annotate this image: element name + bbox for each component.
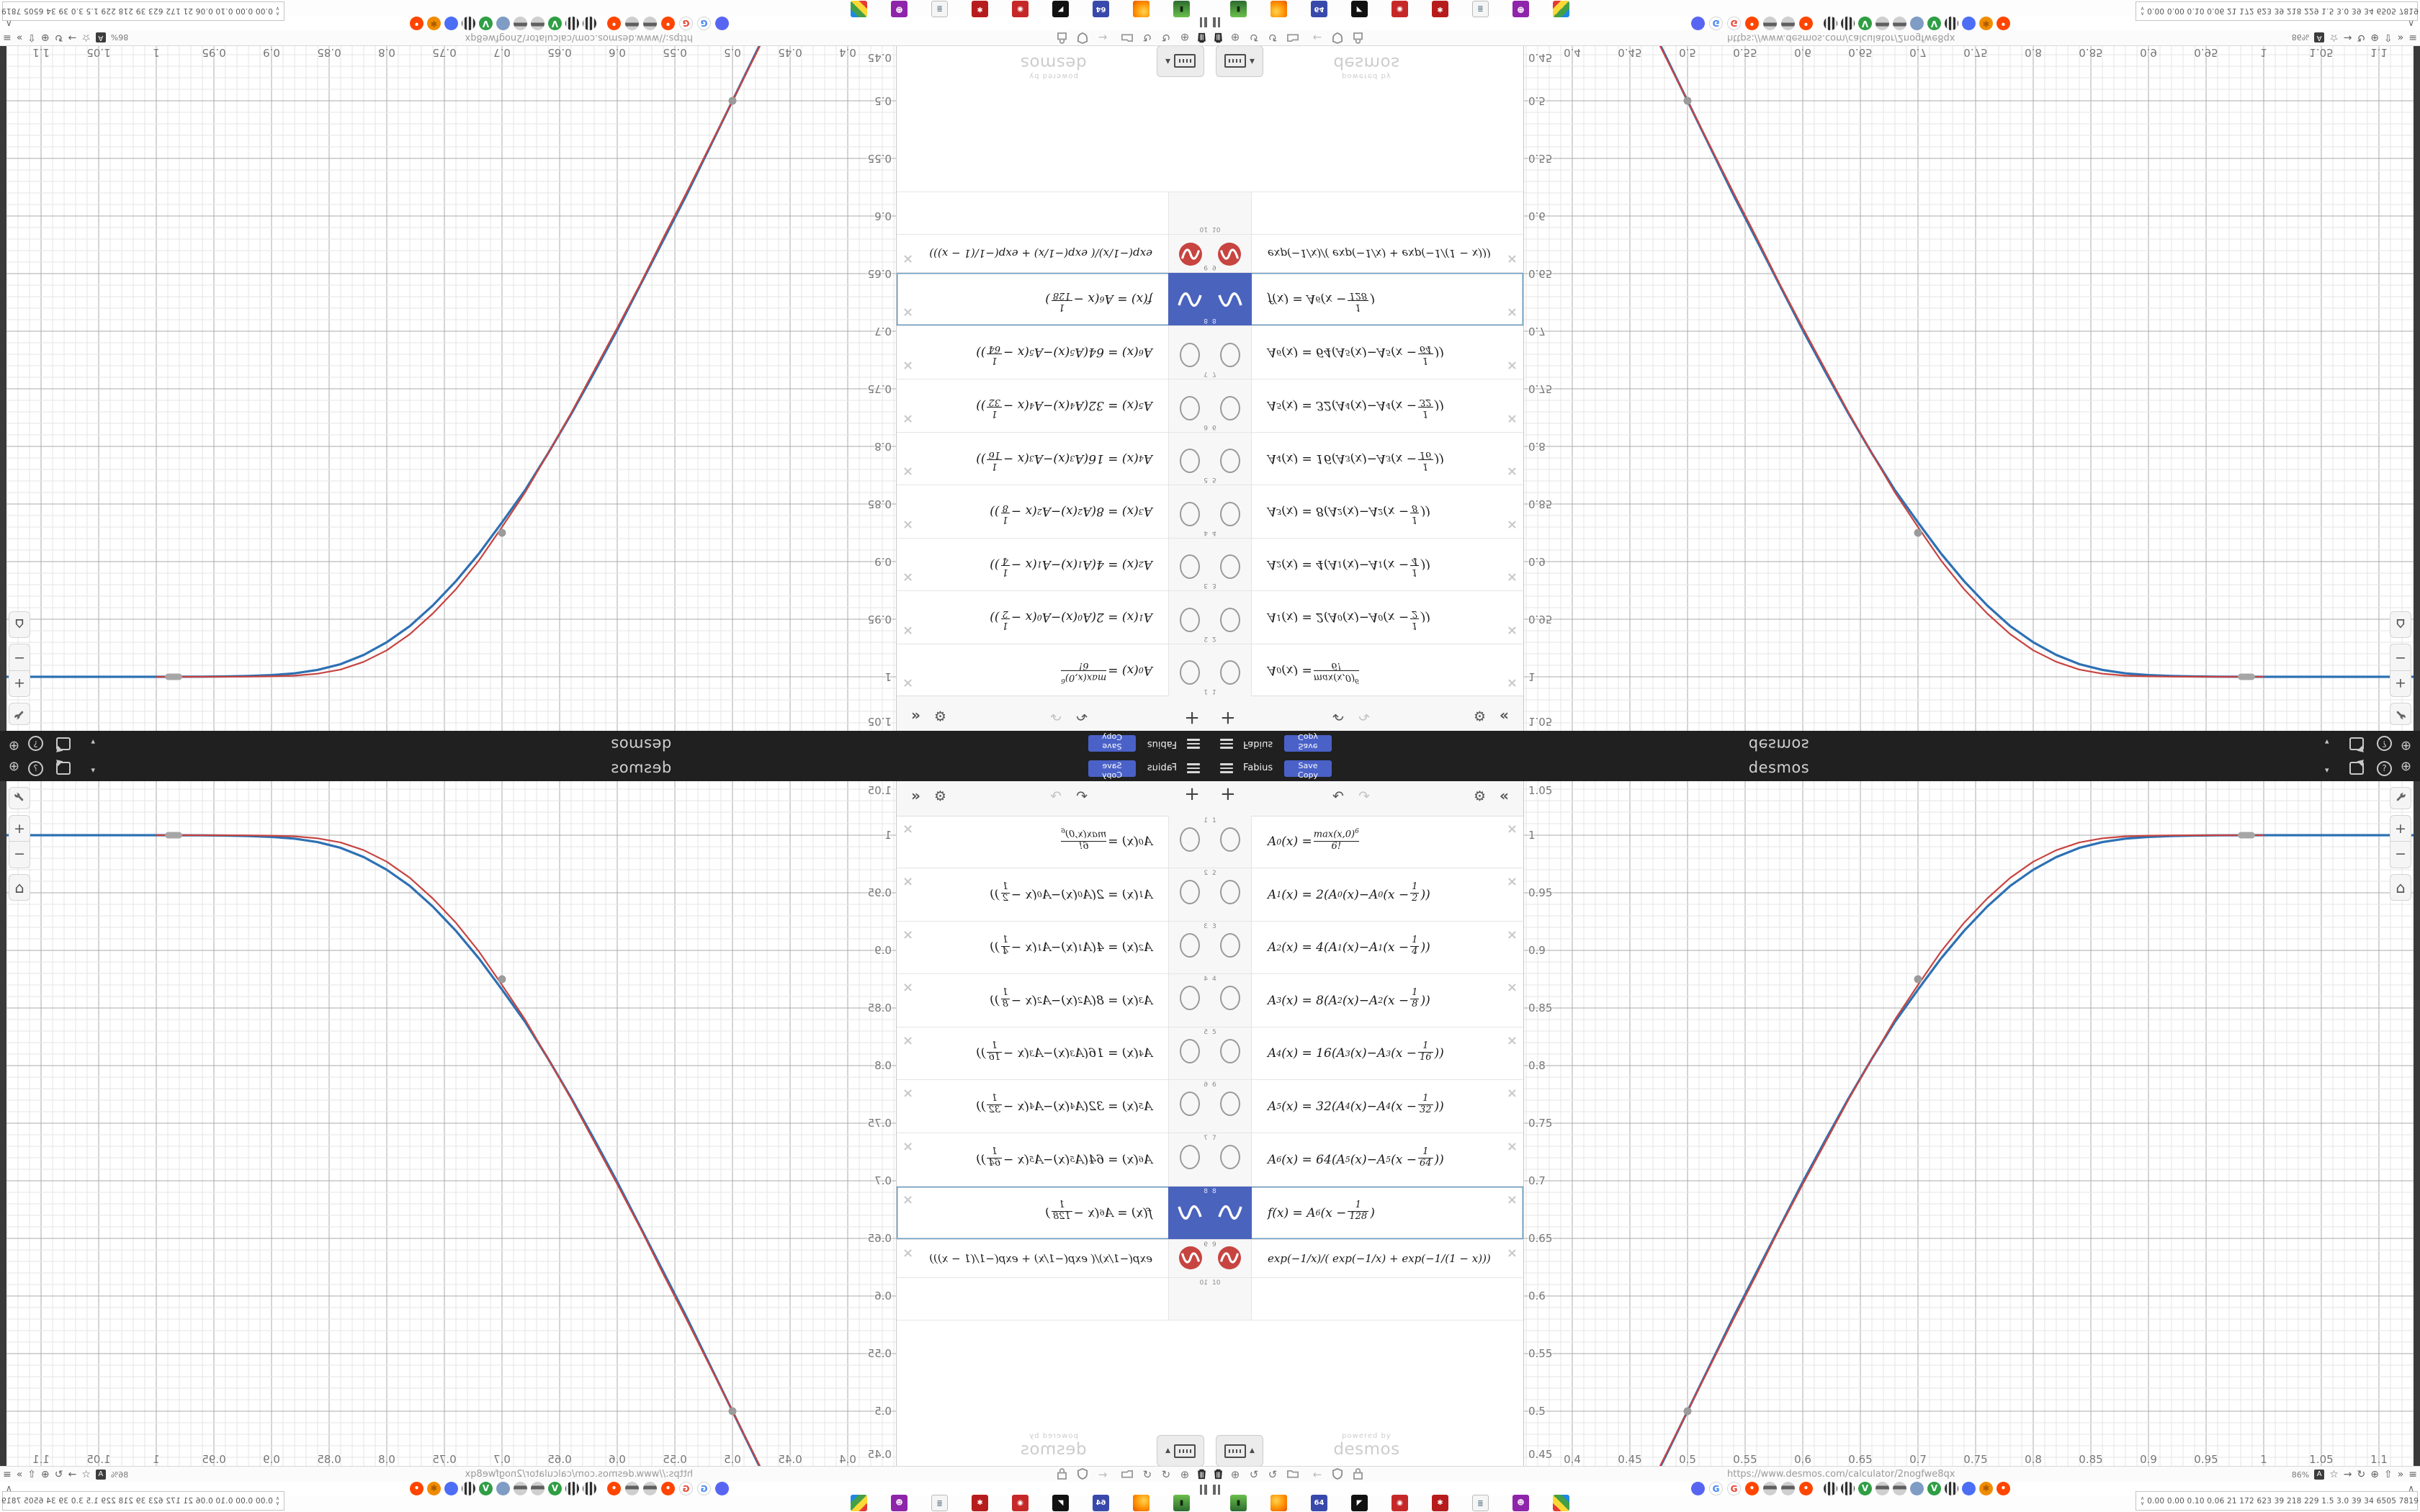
expression-row[interactable]: 8f(x) = A6(x − 1128)× — [1210, 272, 1523, 325]
lock-icon[interactable] — [1056, 1468, 1069, 1481]
zoom-level[interactable]: 86% — [2292, 1470, 2309, 1480]
red-curve-icon[interactable] — [1218, 1246, 1241, 1269]
favicon-avatar-blue[interactable] — [496, 17, 510, 30]
undo-button[interactable]: ↶ — [1076, 788, 1088, 804]
url-text[interactable]: https://www.desmos.com/calculator/2nogfw… — [1727, 1469, 1955, 1480]
hidden-curve-icon[interactable] — [1220, 343, 1240, 367]
scrollbar[interactable] — [2414, 46, 2420, 731]
expression-row[interactable]: 4A3(x) = 8(A2(x)−A2(x − 18))× — [897, 485, 1210, 538]
expression-row[interactable]: 8f(x) = A6(x − 1128)× — [897, 1187, 1210, 1240]
hidden-curve-icon[interactable] — [1180, 554, 1200, 579]
expression-row[interactable]: 2A1(x) = 2(A0(x)−A0(x − 12))× — [1210, 590, 1523, 644]
expression-row[interactable]: 9exp(−1/x)/( exp(−1/x) + exp(−1/(1 − x))… — [897, 1240, 1210, 1278]
default-zoom-home-button[interactable]: ⌂ — [9, 611, 30, 638]
app-icon-terminal[interactable]: ▮ — [1173, 1495, 1190, 1511]
expression-row[interactable]: 8f(x) = A6(x − 1128)× — [1210, 1187, 1523, 1240]
chevrons-icon[interactable]: » — [17, 1469, 23, 1480]
graph-area[interactable]: 0.40.450.50.550.60.650.70.750.80.850.90.… — [1524, 781, 2420, 1466]
graph-title[interactable]: Fabius — [1243, 762, 1273, 773]
delete-expression-button[interactable]: × — [902, 411, 913, 426]
hidden-curve-icon[interactable] — [1180, 608, 1200, 632]
favicon-jail[interactable] — [1841, 1482, 1855, 1495]
expression-row[interactable]: 3A2(x) = 4(A1(x)−A1(x − 14))× — [897, 922, 1210, 974]
globe-icon[interactable]: ⊕ — [9, 760, 19, 773]
expression-icon-cell[interactable]: 10 — [1168, 192, 1210, 234]
delete-expression-button[interactable]: × — [1507, 251, 1518, 266]
favicon-jail[interactable] — [565, 1482, 579, 1495]
delete-expression-button[interactable]: × — [1507, 305, 1518, 320]
trash-icon[interactable] — [1196, 31, 1209, 44]
share-icon[interactable] — [2349, 762, 2364, 775]
favicon-jail[interactable] — [583, 1482, 596, 1495]
chevrons-icon[interactable]: » — [2398, 1469, 2404, 1480]
favicon-raccoon[interactable] — [531, 1482, 544, 1495]
delete-expression-button[interactable]: × — [1507, 874, 1518, 889]
expression-math[interactable]: A0(x) = max(x,0)66! — [1059, 816, 1168, 868]
app-icon-bw-app[interactable]: ◤ — [1052, 1, 1069, 17]
expression-row[interactable]: 9exp(−1/x)/( exp(−1/x) + exp(−1/(1 − x))… — [897, 234, 1210, 272]
expression-icon-cell[interactable]: 1 — [1168, 816, 1210, 868]
globe-icon[interactable]: ⊕ — [41, 32, 50, 43]
share-icon[interactable]: ⇧ — [27, 1469, 36, 1480]
app-icon-red-badge[interactable]: ◉ — [1012, 1495, 1028, 1511]
hidden-curve-icon[interactable] — [1220, 502, 1240, 526]
expression-row[interactable]: 10 — [897, 1278, 1210, 1320]
help-icon[interactable]: ? — [28, 761, 43, 776]
favicon-raccoon[interactable] — [643, 1482, 657, 1495]
settings-gear-icon[interactable]: ⚙ — [934, 708, 946, 724]
expression-row[interactable]: 9exp(−1/x)/( exp(−1/x) + exp(−1/(1 − x))… — [1210, 1240, 1523, 1278]
favicon-reddit[interactable]: • — [661, 1482, 675, 1495]
delete-expression-button[interactable]: × — [902, 623, 913, 638]
refresh-icon[interactable]: ↻ — [55, 1469, 63, 1480]
favicon-reddit[interactable]: • — [1996, 1482, 2010, 1495]
graph-title[interactable]: Fabius — [1243, 739, 1273, 750]
back-arrow-icon[interactable]: ← — [1311, 31, 1324, 44]
favicon-google[interactable]: G — [697, 17, 711, 30]
expression-icon-cell[interactable]: 7 — [1168, 326, 1210, 379]
favicon-green-v[interactable]: V — [1858, 1482, 1872, 1495]
expression-row[interactable]: 2A1(x) = 2(A0(x)−A0(x − 12))× — [897, 868, 1210, 922]
delete-expression-button[interactable]: × — [902, 358, 913, 373]
pause-icon[interactable] — [1198, 14, 1207, 28]
default-zoom-home-button[interactable]: ⌂ — [9, 874, 30, 901]
expression-icon-cell[interactable]: 9 — [1210, 1240, 1252, 1277]
menu-icon[interactable] — [1220, 738, 1233, 749]
forward-arrow-icon[interactable]: → — [2344, 32, 2352, 43]
app-icon-firefox[interactable] — [1133, 1, 1149, 17]
globe-icon[interactable]: ⊕ — [2401, 739, 2411, 752]
trash-icon[interactable] — [1211, 31, 1224, 44]
zoom-in-button[interactable]: + — [9, 670, 30, 697]
bookmark-star-icon[interactable]: ☆ — [2329, 1469, 2339, 1480]
zoom-level[interactable]: 86% — [2292, 33, 2309, 42]
delete-expression-button[interactable]: × — [902, 1086, 913, 1101]
globe-icon[interactable]: ⊕ — [2370, 1469, 2379, 1480]
favicon-google[interactable]: G — [679, 17, 693, 30]
hidden-curve-icon[interactable] — [1180, 502, 1200, 526]
favicon-avatar-blue[interactable] — [496, 1482, 510, 1495]
delete-expression-button[interactable]: × — [1507, 570, 1518, 585]
globe-icon[interactable]: ⊕ — [41, 1469, 50, 1480]
expression-row[interactable]: 7A6(x) = 64(A5(x)−A5(x − 164))× — [897, 1133, 1210, 1187]
save-copy-button[interactable]: Save Copy — [1284, 735, 1332, 752]
hidden-curve-icon[interactable] — [1220, 880, 1240, 904]
app-icon-floppy-64[interactable]: 64 — [1093, 1495, 1109, 1511]
globe-icon[interactable]: ⊕ — [9, 739, 19, 752]
bookmark-star-icon[interactable]: ☆ — [81, 32, 91, 43]
translate-icon[interactable]: A — [2314, 32, 2324, 42]
favicon-jail[interactable] — [1945, 1482, 1958, 1495]
expression-math[interactable]: A2(x) = 4(A1(x)−A1(x − 14)) — [1252, 922, 1430, 973]
lock-icon[interactable] — [1056, 31, 1069, 44]
favicon-raccoon[interactable] — [1875, 1482, 1889, 1495]
favicon-green-v[interactable]: V — [479, 1482, 493, 1495]
zoom-out-button[interactable]: − — [9, 842, 30, 868]
graph-area[interactable]: 0.40.450.50.550.60.650.70.750.80.850.90.… — [0, 46, 896, 731]
refresh-icon[interactable]: ↻ — [2357, 1469, 2365, 1480]
curve-blue-fabius[interactable] — [0, 46, 848, 677]
hidden-curve-icon[interactable] — [1220, 554, 1240, 579]
expression-row[interactable]: 1A0(x) = max(x,0)66!× — [897, 816, 1210, 868]
expression-math[interactable]: f(x) = A6(x − 1128) — [1045, 273, 1168, 325]
favicon-chat-blue[interactable] — [1962, 17, 1976, 30]
hidden-curve-icon[interactable] — [1220, 1039, 1240, 1063]
delete-expression-button[interactable]: × — [1507, 1033, 1518, 1048]
expression-icon-cell[interactable]: 2 — [1210, 868, 1252, 921]
expression-row[interactable]: 2A1(x) = 2(A0(x)−A0(x − 12))× — [897, 590, 1210, 644]
shield-icon[interactable] — [1076, 1468, 1089, 1481]
delete-expression-button[interactable]: × — [1507, 675, 1518, 690]
intersection-point[interactable] — [498, 976, 506, 984]
expression-icon-cell[interactable]: 6 — [1168, 1080, 1210, 1133]
expression-math[interactable]: A6(x) = 64(A5(x)−A5(x − 164)) — [1252, 1133, 1444, 1186]
app-icon-purple-face[interactable]: ☻ — [1512, 1495, 1529, 1511]
expression-icon-cell[interactable]: 3 — [1168, 539, 1210, 590]
app-icon-palette[interactable] — [851, 1495, 867, 1511]
zoom-out-button[interactable]: − — [9, 644, 30, 670]
expression-icon-cell[interactable]: 2 — [1168, 591, 1210, 644]
intersection-point[interactable] — [729, 97, 737, 105]
app-icon-firefox[interactable] — [1270, 1495, 1287, 1511]
expression-math[interactable]: A6(x) = 64(A5(x)−A5(x − 164)) — [1252, 326, 1444, 379]
expression-icon-cell[interactable]: 5 — [1210, 1027, 1252, 1079]
favicon-raccoon[interactable] — [1763, 17, 1777, 30]
reload-icon[interactable]: ↺ — [1266, 31, 1279, 44]
graph-area[interactable]: 0.40.450.50.550.60.650.70.750.80.850.90.… — [1524, 46, 2420, 731]
expression-row[interactable]: 2A1(x) = 2(A0(x)−A0(x − 12))× — [1210, 868, 1523, 922]
app-icon-purple-face[interactable]: ☻ — [1512, 1, 1529, 17]
help-icon[interactable]: ? — [2377, 761, 2392, 776]
expression-math[interactable]: A4(x) = 16(A3(x)−A3(x − 116)) — [1252, 433, 1444, 485]
trash-icon[interactable] — [1211, 1468, 1224, 1481]
expression-icon-cell[interactable]: 6 — [1168, 379, 1210, 432]
merged-points-capsule[interactable] — [165, 832, 182, 839]
expression-icon-cell[interactable]: 10 — [1168, 1278, 1210, 1320]
expression-math[interactable]: A3(x) = 8(A2(x)−A2(x − 18)) — [990, 974, 1168, 1027]
add-expression-button[interactable]: + — [1184, 707, 1200, 729]
expression-icon-cell[interactable]: 8 — [1210, 1187, 1252, 1239]
undo-button[interactable]: ↶ — [1332, 788, 1344, 804]
app-icon-floppy-64[interactable]: 64 — [1311, 1, 1327, 17]
expression-math[interactable]: f(x) = A6(x − 1128) — [1252, 273, 1375, 325]
menu-icon[interactable] — [1187, 738, 1200, 749]
hidden-curve-icon[interactable] — [1220, 608, 1240, 632]
expression-math[interactable] — [1252, 1278, 1268, 1320]
delete-expression-button[interactable]: × — [1507, 1139, 1518, 1154]
forward-arrow-icon[interactable]: → — [68, 1469, 77, 1480]
expression-math[interactable] — [1152, 1278, 1168, 1320]
globe-icon[interactable]: ⊕ — [2370, 32, 2379, 43]
expression-math[interactable] — [1152, 192, 1168, 234]
app-icon-palette[interactable] — [851, 1, 867, 17]
expression-math[interactable]: A0(x) = max(x,0)66! — [1252, 816, 1361, 868]
default-zoom-home-button[interactable]: ⌂ — [2390, 874, 2411, 901]
expression-icon-cell[interactable]: 9 — [1168, 1240, 1210, 1277]
expression-icon-cell[interactable]: 1 — [1168, 644, 1210, 696]
favicon-discord[interactable] — [1691, 1482, 1705, 1495]
delete-expression-button[interactable]: × — [1507, 464, 1518, 479]
expression-math[interactable]: A0(x) = max(x,0)66! — [1059, 644, 1168, 696]
favicon-reddit[interactable]: • — [607, 17, 621, 30]
delete-expression-button[interactable]: × — [902, 1033, 913, 1048]
hidden-curve-icon[interactable] — [1180, 933, 1200, 958]
favicon-raccoon[interactable] — [531, 17, 544, 30]
expression-math[interactable]: A1(x) = 2(A0(x)−A0(x − 12)) — [990, 591, 1168, 644]
favicon-google[interactable]: G — [1709, 1482, 1723, 1495]
expression-row[interactable]: 5A4(x) = 16(A3(x)−A3(x − 116))× — [897, 432, 1210, 485]
favicon-reddit[interactable]: • — [410, 1482, 423, 1495]
menu-icon[interactable] — [1187, 763, 1200, 774]
shield-icon[interactable] — [1331, 31, 1344, 44]
globe-icon[interactable]: ⊕ — [1178, 31, 1191, 44]
app-icon-notepad[interactable]: ≣ — [931, 1, 948, 17]
expression-icon-cell[interactable]: 1 — [1210, 816, 1252, 868]
delete-expression-button[interactable]: × — [1507, 1086, 1518, 1101]
favicon-google[interactable]: G — [1727, 17, 1741, 30]
app-icon-red-gear[interactable]: ✱ — [972, 1495, 988, 1511]
hidden-curve-icon[interactable] — [1180, 343, 1200, 367]
favicon-green-v[interactable]: V — [548, 1482, 562, 1495]
chevrons-icon[interactable]: » — [2398, 32, 2404, 43]
url-text[interactable]: https://www.desmos.com/calculator/2nogfw… — [1727, 32, 1955, 43]
delete-expression-button[interactable]: × — [902, 570, 913, 585]
intersection-point[interactable] — [1914, 976, 1922, 984]
hidden-curve-icon[interactable] — [1180, 1092, 1200, 1116]
globe-icon[interactable]: ⊕ — [1229, 1468, 1242, 1481]
chevron-down-icon[interactable]: ▾ — [91, 735, 95, 748]
favicon-reddit[interactable]: • — [661, 17, 675, 30]
expression-row[interactable]: 6A5(x) = 32(A4(x)−A4(x − 132))× — [1210, 1080, 1523, 1133]
favicon-discord[interactable] — [715, 1482, 729, 1495]
share-icon[interactable] — [56, 737, 71, 750]
collapse-panel-button[interactable]: « — [911, 787, 920, 804]
translate-icon[interactable]: A — [2314, 1470, 2324, 1480]
delete-expression-button[interactable]: × — [1507, 1246, 1518, 1261]
favicon-gear-orange[interactable]: ✱ — [427, 17, 441, 30]
favicon-jail[interactable] — [1824, 17, 1837, 30]
reload-icon[interactable]: ↺ — [1141, 1468, 1154, 1481]
add-expression-button[interactable]: + — [1220, 707, 1236, 729]
expression-row[interactable]: 4A3(x) = 8(A2(x)−A2(x − 18))× — [897, 974, 1210, 1027]
bookmark-star-icon[interactable]: ☆ — [81, 1469, 91, 1480]
expression-icon-cell[interactable]: 8 — [1168, 1187, 1210, 1239]
app-icon-palette[interactable] — [1553, 1495, 1569, 1511]
graph-title[interactable]: Fabius — [1147, 739, 1177, 750]
delete-expression-button[interactable]: × — [902, 874, 913, 889]
favicon-raccoon[interactable] — [1893, 17, 1906, 30]
expression-math[interactable]: A3(x) = 8(A2(x)−A2(x − 18)) — [1252, 974, 1430, 1027]
favicon-raccoon[interactable] — [514, 1482, 527, 1495]
forward-arrow-icon[interactable]: → — [2344, 1469, 2352, 1480]
expression-icon-cell[interactable]: 2 — [1168, 868, 1210, 921]
translate-icon[interactable]: A — [96, 32, 106, 42]
delete-expression-button[interactable]: × — [902, 1246, 913, 1261]
pause-icon[interactable] — [1213, 14, 1222, 28]
expression-math[interactable]: A5(x) = 32(A4(x)−A4(x − 132)) — [1252, 379, 1444, 432]
intersection-point[interactable] — [729, 1408, 737, 1416]
bookmark-star-icon[interactable]: ☆ — [2329, 32, 2339, 43]
undo-button[interactable]: ↶ — [1332, 708, 1344, 724]
expression-icon-cell[interactable]: 8 — [1168, 273, 1210, 325]
expression-row[interactable]: 5A4(x) = 16(A3(x)−A3(x − 116))× — [897, 1027, 1210, 1080]
help-icon[interactable]: ? — [28, 736, 43, 751]
globe-icon[interactable]: ⊕ — [2401, 760, 2411, 773]
collapse-panel-button[interactable]: « — [1500, 787, 1509, 804]
delete-expression-button[interactable]: × — [1507, 517, 1518, 532]
redo-button[interactable]: ↷ — [1050, 708, 1062, 724]
hidden-curve-icon[interactable] — [1180, 1039, 1200, 1063]
delete-expression-button[interactable]: × — [1507, 980, 1518, 995]
hidden-curve-icon[interactable] — [1180, 660, 1200, 685]
expression-math[interactable]: A5(x) = 32(A4(x)−A4(x − 132)) — [976, 379, 1168, 432]
expression-icon-cell[interactable]: 3 — [1210, 539, 1252, 590]
delete-expression-button[interactable]: × — [1507, 358, 1518, 373]
delete-expression-button[interactable]: × — [902, 980, 913, 995]
folder-icon[interactable] — [1121, 31, 1134, 44]
favicon-discord[interactable] — [715, 17, 729, 30]
reload-icon[interactable]: ↺ — [1160, 31, 1173, 44]
hidden-curve-icon[interactable] — [1220, 449, 1240, 473]
expression-row[interactable]: 4A3(x) = 8(A2(x)−A2(x − 18))× — [1210, 485, 1523, 538]
collapse-panel-button[interactable]: « — [911, 708, 920, 725]
expression-icon-cell[interactable]: 7 — [1168, 1133, 1210, 1186]
expression-math[interactable]: exp(−1/x)/( exp(−1/x) + exp(−1/(1 − x))) — [929, 1240, 1168, 1277]
hidden-curve-icon[interactable] — [1220, 396, 1240, 420]
add-expression-button[interactable]: + — [1184, 783, 1200, 805]
expression-row[interactable]: 7A6(x) = 64(A5(x)−A5(x − 164))× — [1210, 1133, 1523, 1187]
app-icon-red-badge[interactable]: ◉ — [1391, 1, 1408, 17]
chevron-down-icon[interactable]: ▾ — [2325, 735, 2329, 748]
favicon-reddit[interactable]: • — [410, 17, 423, 30]
favicon-raccoon[interactable] — [1781, 1482, 1795, 1495]
favicon-green-v[interactable]: V — [1858, 17, 1872, 30]
expression-row[interactable]: 3A2(x) = 4(A1(x)−A1(x − 14))× — [1210, 538, 1523, 590]
favicon-green-v[interactable]: V — [1927, 1482, 1941, 1495]
favicon-jail[interactable] — [1945, 17, 1958, 30]
globe-icon[interactable]: ⊕ — [1178, 1468, 1191, 1481]
favicon-green-v[interactable]: V — [548, 17, 562, 30]
graph-title[interactable]: Fabius — [1147, 762, 1177, 773]
app-icon-firefox[interactable] — [1270, 1, 1287, 17]
blue-curve-icon[interactable] — [1177, 284, 1203, 312]
expression-icon-cell[interactable]: 8 — [1210, 273, 1252, 325]
intersection-point[interactable] — [1684, 97, 1692, 105]
app-icon-red-badge[interactable]: ◉ — [1012, 1, 1028, 17]
favicon-chat-blue[interactable] — [444, 1482, 458, 1495]
expression-icon-cell[interactable]: 5 — [1168, 433, 1210, 485]
share-icon[interactable]: ⇧ — [27, 32, 36, 43]
chevron-down-icon[interactable]: ▾ — [2325, 764, 2329, 777]
expression-math[interactable]: A1(x) = 2(A0(x)−A0(x − 12)) — [1252, 868, 1430, 921]
expression-row[interactable]: 7A6(x) = 64(A5(x)−A5(x − 164))× — [1210, 325, 1523, 379]
favicon-reddit[interactable]: • — [1745, 17, 1759, 30]
favicon-google[interactable]: G — [1709, 17, 1723, 30]
expression-row[interactable]: 10 — [897, 192, 1210, 234]
red-curve-icon[interactable] — [1179, 243, 1202, 266]
favicon-google[interactable]: G — [679, 1482, 693, 1495]
favicon-avatar-blue[interactable] — [1910, 1482, 1924, 1495]
favicon-raccoon[interactable] — [1875, 17, 1889, 30]
expression-math[interactable]: A5(x) = 32(A4(x)−A4(x − 132)) — [1252, 1080, 1444, 1133]
sort-carets-icon[interactable]: ∧∨ — [2141, 6, 2144, 16]
expression-math[interactable]: A2(x) = 4(A1(x)−A1(x − 14)) — [990, 539, 1168, 590]
favicon-gear-orange[interactable]: ✱ — [1979, 1482, 1993, 1495]
expression-row[interactable]: 8f(x) = A6(x − 1128)× — [897, 272, 1210, 325]
delete-expression-button[interactable]: × — [1507, 927, 1518, 942]
app-icon-terminal[interactable]: ▮ — [1230, 1495, 1247, 1511]
app-icon-purple-face[interactable]: ☻ — [891, 1495, 907, 1511]
expression-math[interactable]: A2(x) = 4(A1(x)−A1(x − 14)) — [990, 922, 1168, 973]
delete-expression-button[interactable]: × — [902, 822, 913, 837]
hidden-curve-icon[interactable] — [1220, 933, 1240, 958]
expression-row[interactable]: 7A6(x) = 64(A5(x)−A5(x − 164))× — [897, 325, 1210, 379]
app-icon-bw-app[interactable]: ◤ — [1351, 1495, 1368, 1511]
zoom-out-button[interactable]: − — [2390, 842, 2411, 868]
menu-icon[interactable]: ≡ — [3, 1469, 12, 1480]
expression-row[interactable]: 1A0(x) = max(x,0)66!× — [1210, 816, 1523, 868]
translate-icon[interactable]: A — [96, 1470, 106, 1480]
settings-gear-icon[interactable]: ⚙ — [1474, 708, 1486, 724]
expression-math[interactable]: exp(−1/x)/( exp(−1/x) + exp(−1/(1 − x))) — [1252, 235, 1491, 272]
expression-math[interactable]: A5(x) = 32(A4(x)−A4(x − 132)) — [976, 1080, 1168, 1133]
url-text[interactable]: https://www.desmos.com/calculator/2nogfw… — [465, 1469, 693, 1480]
hidden-curve-icon[interactable] — [1180, 827, 1200, 852]
expression-math[interactable]: exp(−1/x)/( exp(−1/x) + exp(−1/(1 − x))) — [1252, 1240, 1491, 1277]
back-arrow-icon[interactable]: ← — [1096, 31, 1109, 44]
graph-settings-wrench-button[interactable] — [9, 703, 30, 725]
delete-expression-button[interactable]: × — [902, 927, 913, 942]
hidden-curve-icon[interactable] — [1220, 827, 1240, 852]
menu-icon[interactable]: ≡ — [2408, 1469, 2417, 1480]
app-icon-floppy-64[interactable]: 64 — [1311, 1495, 1327, 1511]
expression-row[interactable]: 10 — [1210, 1278, 1523, 1320]
hidden-curve-icon[interactable] — [1180, 449, 1200, 473]
merged-points-capsule[interactable] — [2238, 832, 2255, 839]
expression-math[interactable]: A1(x) = 2(A0(x)−A0(x − 12)) — [1252, 591, 1430, 644]
app-icon-firefox[interactable] — [1133, 1495, 1149, 1511]
expression-math[interactable]: exp(−1/x)/( exp(−1/x) + exp(−1/(1 − x))) — [929, 235, 1168, 272]
chevron-down-icon[interactable]: ▾ — [91, 764, 95, 777]
expression-row[interactable]: 3A2(x) = 4(A1(x)−A1(x − 14))× — [1210, 922, 1523, 974]
favicon-google[interactable]: G — [1727, 1482, 1741, 1495]
curve-blue-fabius[interactable] — [1572, 46, 2420, 677]
expression-icon-cell[interactable]: 6 — [1210, 1080, 1252, 1133]
favicon-green-v[interactable]: V — [1927, 17, 1941, 30]
merged-points-capsule[interactable] — [2238, 674, 2255, 680]
folder-icon[interactable] — [1286, 1468, 1299, 1481]
favicon-jail[interactable] — [462, 17, 475, 30]
